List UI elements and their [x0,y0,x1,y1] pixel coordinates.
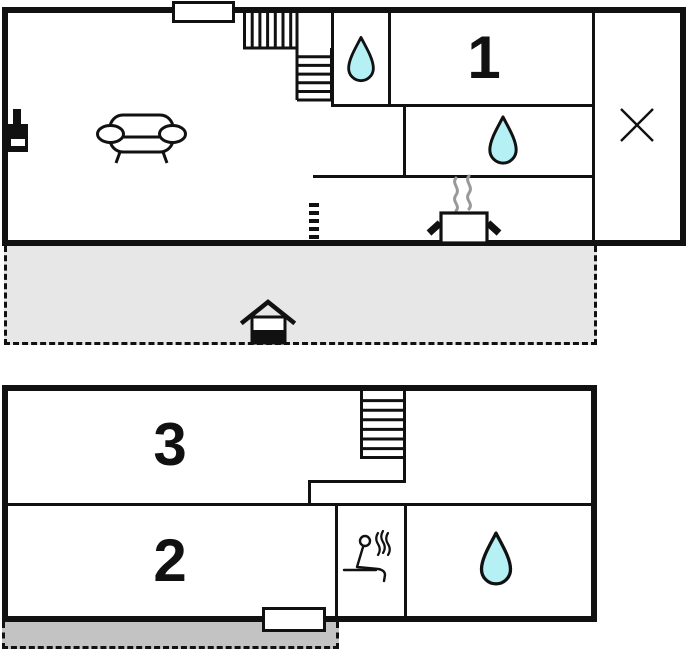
room-1-label: 1 [434,28,534,88]
sofa-icon [93,108,193,166]
floor-plan-canvas: 1 [0,0,689,652]
room-3-label: 3 [120,415,220,475]
upper-stairs-icon [243,12,333,102]
cooking-pot-icon [425,172,505,246]
lower-stairs-icon [360,391,406,459]
cross-icon [617,105,657,145]
wall [403,104,406,178]
wall [388,10,391,107]
house-entrance-icon [240,297,296,347]
wall [308,480,406,483]
wood-stove-icon [8,124,28,152]
wall [335,503,338,616]
wall [404,503,407,616]
window-icon [172,1,235,23]
dashed-partition [309,203,319,240]
water-drop-icon [478,530,514,588]
terrace-area [4,246,597,345]
wall [5,503,594,506]
wall [592,10,595,243]
window-icon [262,607,326,632]
wood-stove-icon [13,109,21,125]
sauna-icon [340,520,392,586]
water-drop-icon [487,113,519,168]
wood-stove-icon [11,139,25,146]
wall [308,480,311,506]
wall [331,104,594,107]
water-drop-icon [346,33,376,86]
room-2-label: 2 [120,531,220,591]
